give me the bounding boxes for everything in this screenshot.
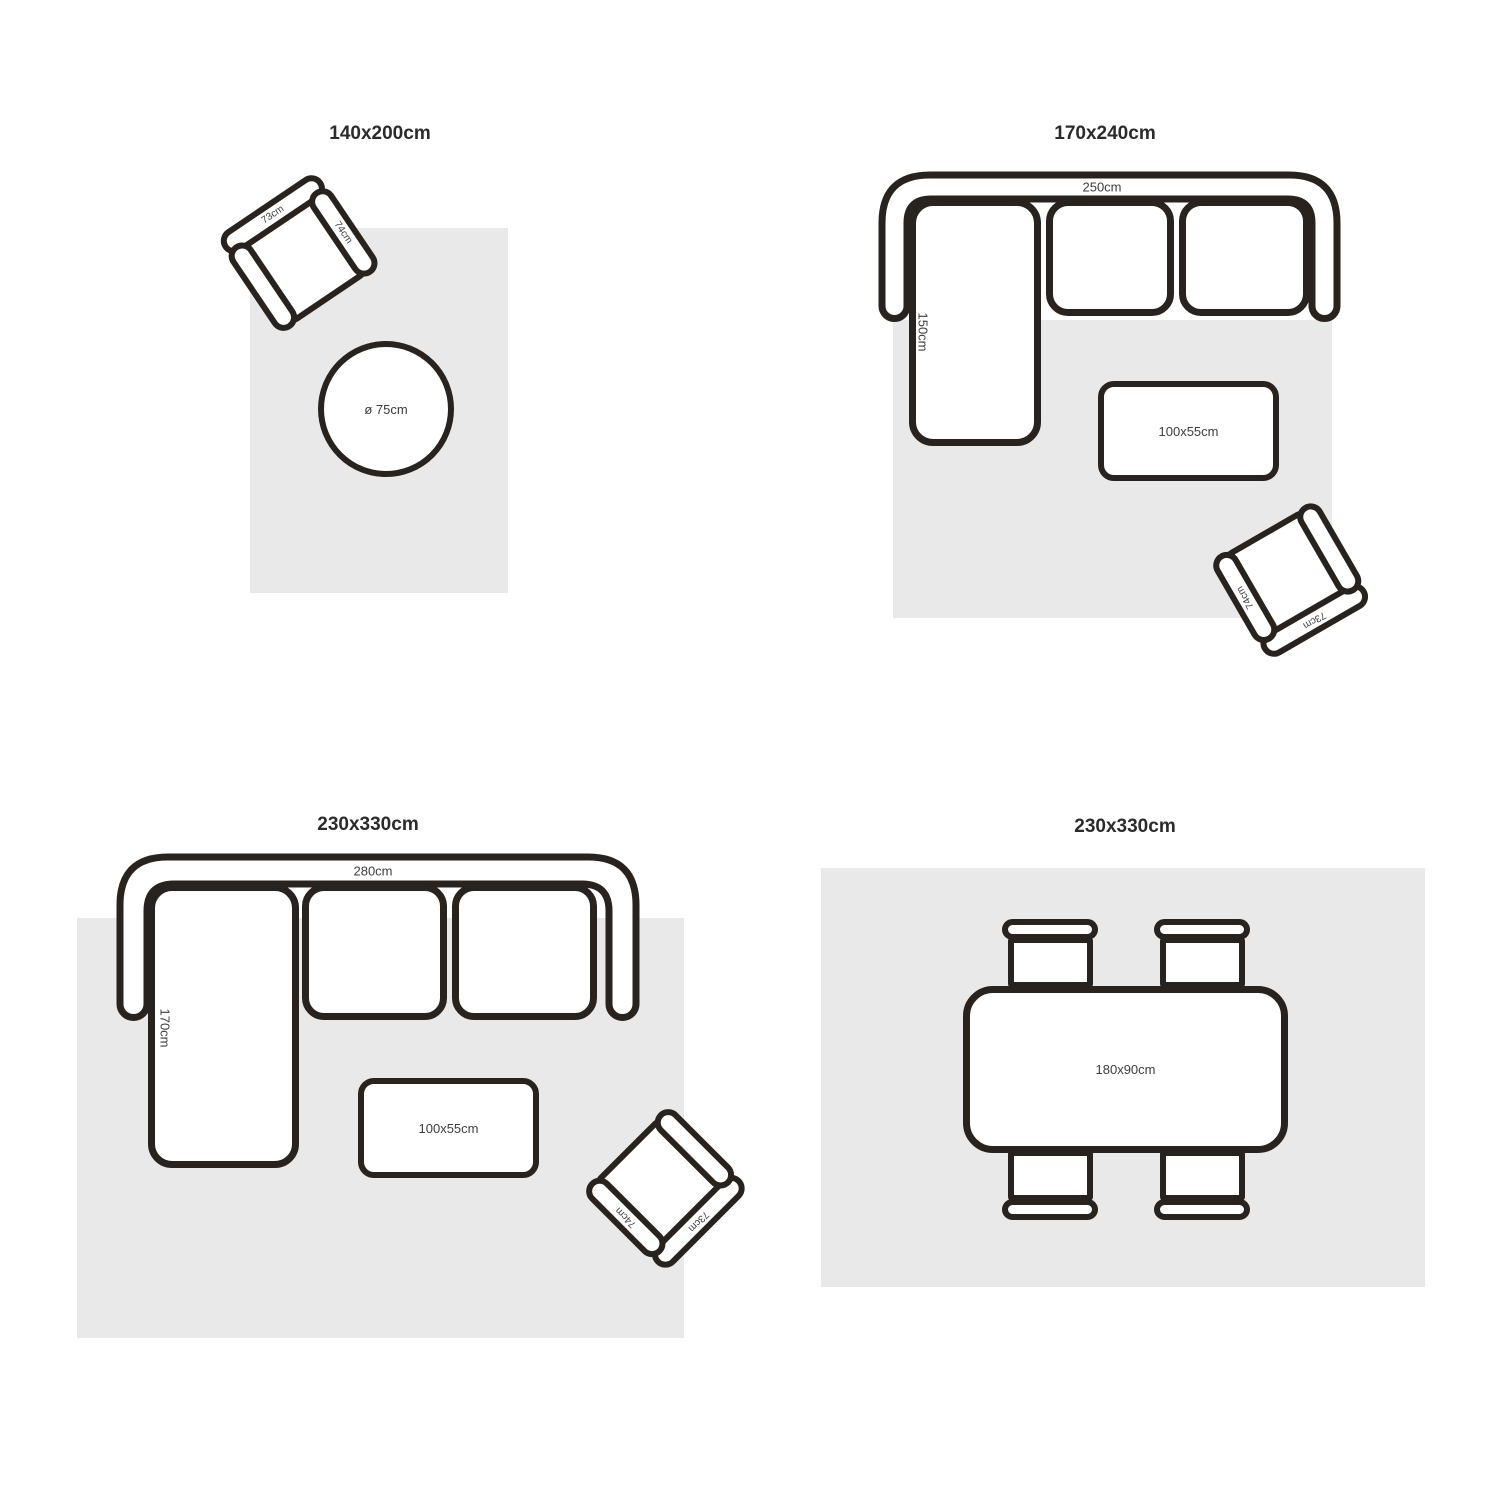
sofa-seat-cushion: [452, 884, 597, 1020]
sofa-seat-cushion: [1179, 199, 1310, 316]
chair-seat: [1160, 1150, 1245, 1201]
round-side-table: ø 75cm: [318, 341, 454, 477]
armchair-arm-label: 74cm: [1234, 584, 1256, 611]
rug-size-guide: 140x200cm 73cm 74cm ø 75cm 170x240cm 250…: [0, 0, 1500, 1500]
dining-table-label: 180x90cm: [1096, 1062, 1156, 1077]
sofa-seat-cushion: [1046, 199, 1174, 316]
armchair-back-label: 73cm: [1301, 609, 1328, 631]
panel-title: 140x200cm: [329, 123, 430, 145]
coffee-table: 100x55cm: [1098, 381, 1279, 481]
chair-backrest: [1154, 1199, 1250, 1220]
armchair-back-label: 73cm: [260, 203, 286, 226]
chaise-depth-label: 150cm: [916, 312, 931, 351]
coffee-table-label: 100x55cm: [419, 1121, 479, 1136]
sofa-width-label: 280cm: [353, 864, 392, 879]
armchair-arm-label: 74cm: [332, 219, 355, 245]
chair-backrest: [1002, 1199, 1098, 1220]
armchair-arm-label: 74cm: [613, 1205, 638, 1230]
panel-title: 230x330cm: [1074, 816, 1175, 838]
panel-title: 170x240cm: [1054, 123, 1155, 145]
chair-seat: [1160, 937, 1245, 988]
round-table-label: ø 75cm: [364, 402, 407, 417]
dining-table: 180x90cm: [963, 986, 1288, 1153]
coffee-table-label: 100x55cm: [1159, 424, 1219, 439]
armchair-back-label: 73cm: [686, 1209, 711, 1234]
sofa-width-label: 250cm: [1082, 180, 1121, 195]
chair-seat: [1008, 1150, 1093, 1201]
chaise-depth-label: 170cm: [158, 1008, 173, 1047]
coffee-table: 100x55cm: [358, 1078, 539, 1178]
sofa-seat-cushion: [302, 884, 447, 1020]
panel-title: 230x330cm: [317, 814, 418, 836]
chair-seat: [1008, 937, 1093, 988]
